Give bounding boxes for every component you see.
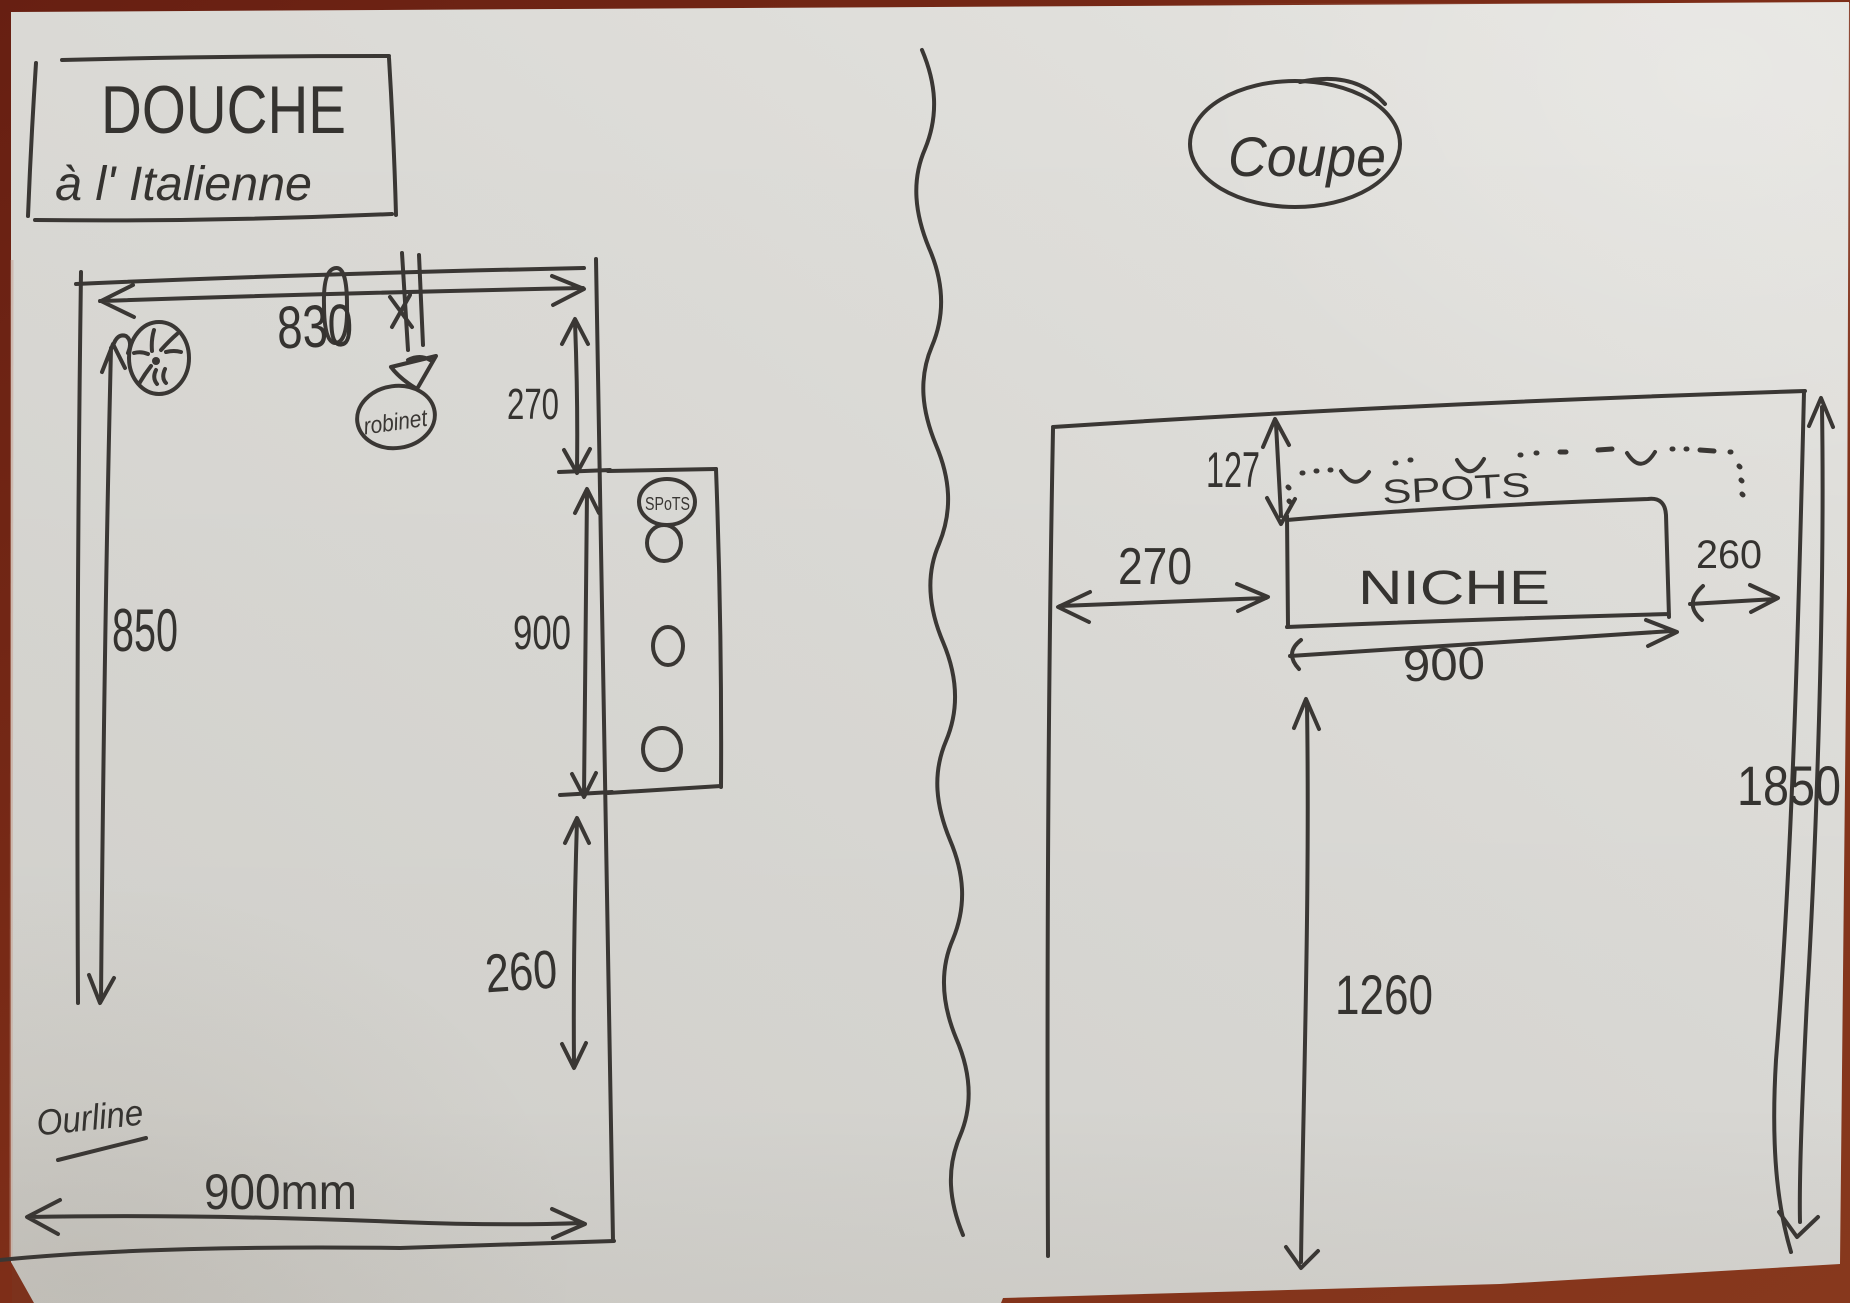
svg-text:NICHE: NICHE — [1358, 562, 1550, 615]
svg-text:830: 830 — [276, 292, 354, 362]
svg-text:1850: 1850 — [1737, 754, 1841, 817]
svg-text:900: 900 — [1402, 637, 1486, 692]
svg-text:Coupe: Coupe — [1228, 125, 1386, 188]
svg-text:SPOTS: SPOTS — [1381, 466, 1531, 512]
svg-text:260: 260 — [1696, 533, 1762, 577]
svg-text:à l' Italienne: à l' Italienne — [55, 158, 312, 211]
svg-text:900mm: 900mm — [204, 1164, 357, 1220]
svg-text:DOUCHE: DOUCHE — [101, 72, 346, 148]
svg-text:270: 270 — [1118, 538, 1192, 596]
svg-text:900: 900 — [513, 607, 571, 660]
svg-text:127: 127 — [1206, 442, 1260, 498]
svg-text:270: 270 — [507, 380, 559, 429]
svg-text:1260: 1260 — [1335, 963, 1433, 1026]
svg-text:SPoTS: SPoTS — [645, 494, 690, 514]
svg-text:260: 260 — [483, 939, 559, 1004]
svg-text:850: 850 — [112, 597, 178, 664]
